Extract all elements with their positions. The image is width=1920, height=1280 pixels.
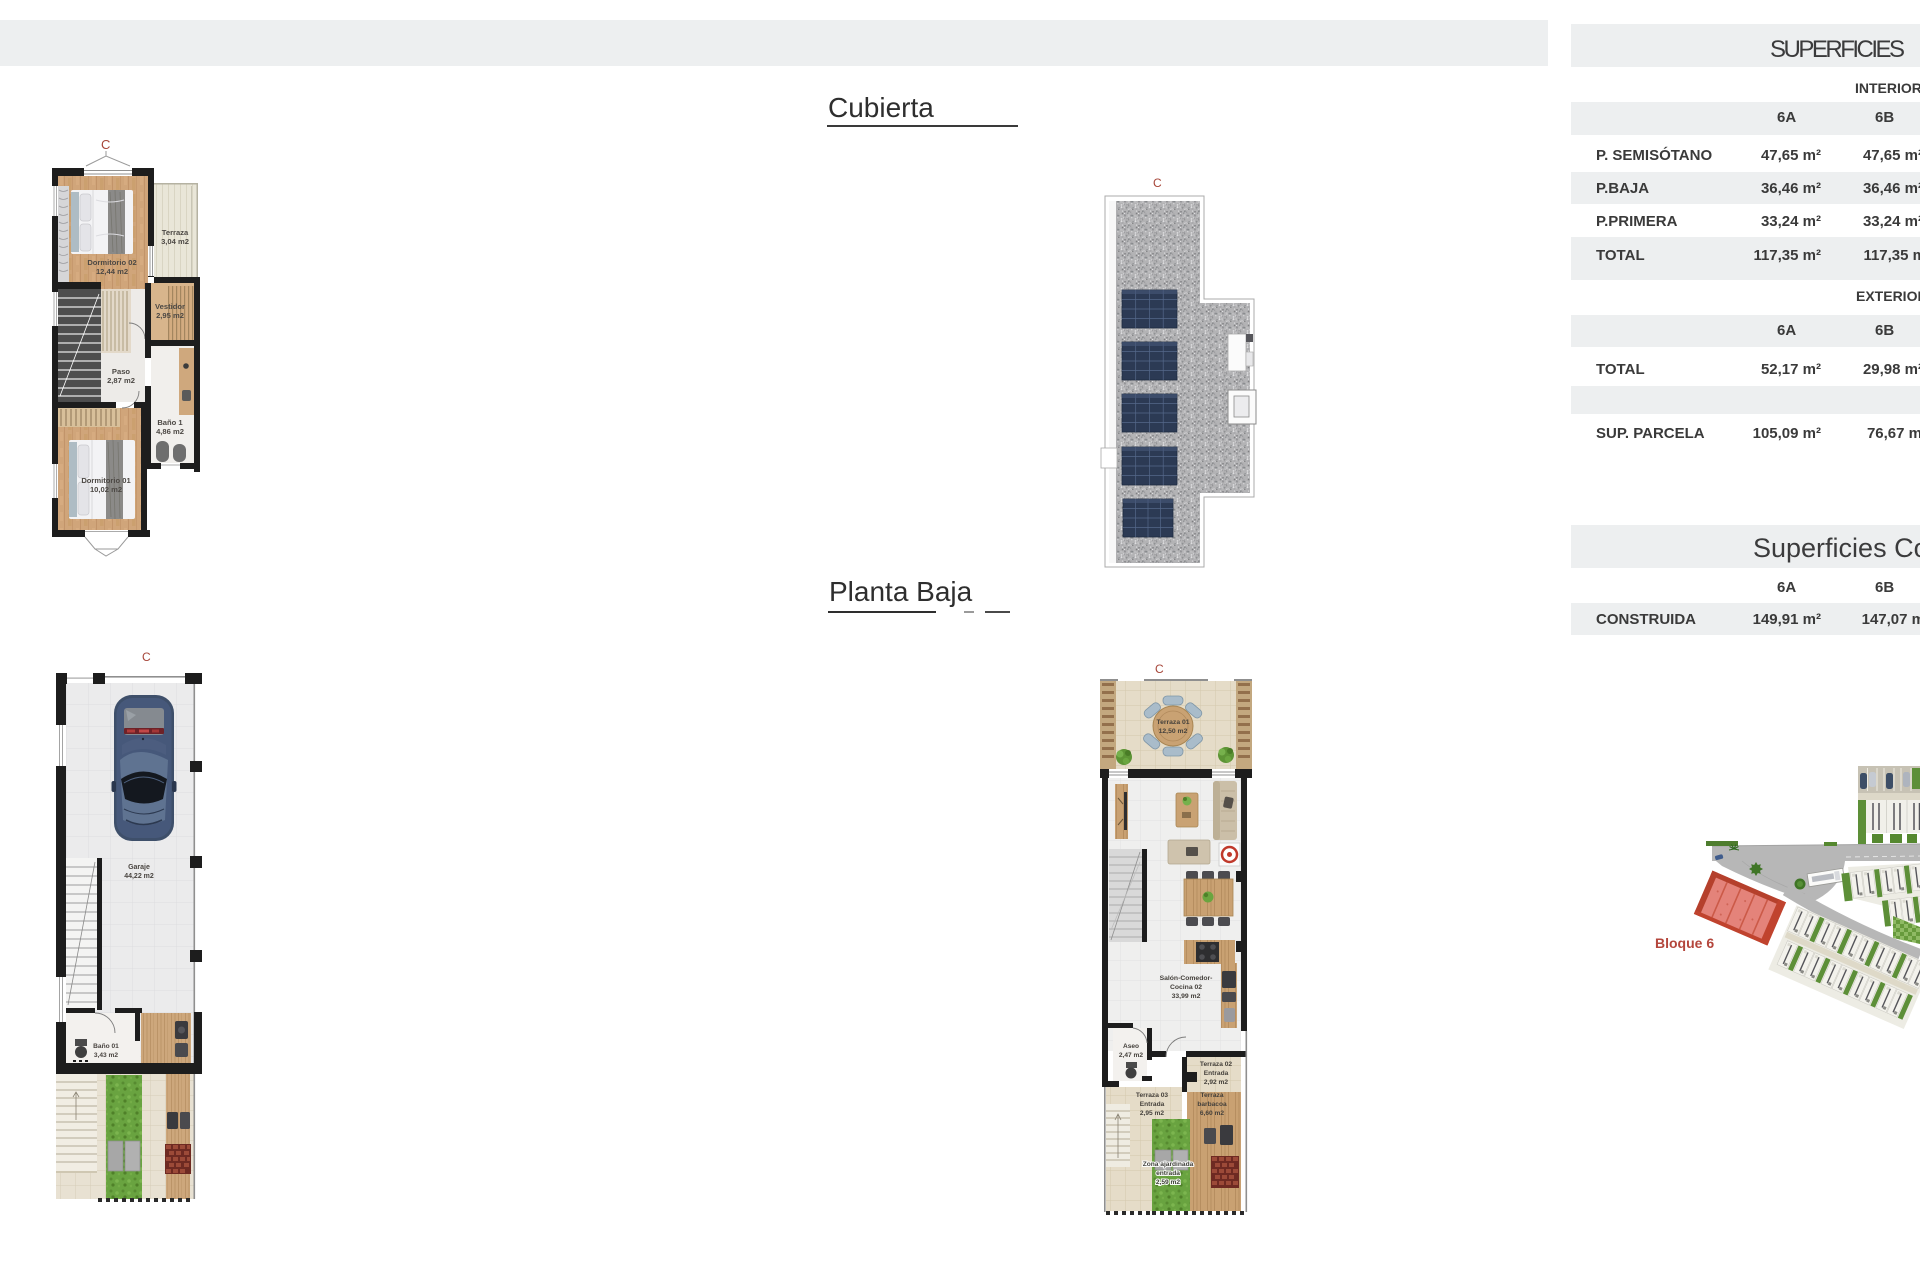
svg-text:44,22 m2: 44,22 m2	[124, 873, 154, 880]
svg-text:12,50 m2: 12,50 m2	[1159, 728, 1188, 735]
svg-text:Vestidor: Vestidor	[155, 302, 185, 311]
svg-text:Entrada: Entrada	[1140, 1101, 1165, 1108]
svg-text:6,60 m2: 6,60 m2	[1200, 1110, 1225, 1117]
svg-text:Terraza: Terraza	[1201, 1092, 1224, 1099]
svg-text:Dormitorio 01: Dormitorio 01	[81, 476, 131, 485]
svg-text:Terraza 01: Terraza 01	[1156, 719, 1189, 726]
svg-text:2,95 m2: 2,95 m2	[156, 311, 184, 320]
svg-text:2,87 m2: 2,87 m2	[107, 376, 135, 385]
svg-text:33,99 m2: 33,99 m2	[1172, 993, 1201, 1000]
svg-text:Garaje: Garaje	[128, 864, 150, 871]
svg-text:12,44 m2: 12,44 m2	[96, 267, 128, 276]
svg-text:2,47 m2: 2,47 m2	[1119, 1052, 1144, 1059]
svg-text:C: C	[1153, 176, 1162, 190]
svg-text:C: C	[101, 137, 110, 152]
svg-text:entrada: entrada	[1156, 1170, 1180, 1177]
svg-text:Baño 1: Baño 1	[157, 418, 183, 427]
svg-text:Terraza: Terraza	[162, 228, 189, 237]
svg-text:C: C	[142, 650, 151, 664]
svg-text:Zona ajardinada: Zona ajardinada	[1143, 1161, 1194, 1168]
svg-text:4,86 m2: 4,86 m2	[156, 427, 184, 436]
svg-text:C: C	[1155, 662, 1164, 676]
svg-text:Cocina 02: Cocina 02	[1170, 984, 1202, 991]
svg-text:barbacoa: barbacoa	[1197, 1101, 1227, 1108]
svg-text:Baño 01: Baño 01	[93, 1043, 119, 1050]
svg-text:Aseo: Aseo	[1123, 1043, 1139, 1050]
svg-text:2,95 m2: 2,95 m2	[1140, 1110, 1165, 1117]
svg-text:Entrada: Entrada	[1204, 1070, 1229, 1077]
svg-text:Terraza 02: Terraza 02	[1200, 1061, 1232, 1068]
svg-text:2,92 m2: 2,92 m2	[1204, 1079, 1229, 1086]
svg-text:Paso: Paso	[112, 367, 131, 376]
svg-text:Terraza 03: Terraza 03	[1136, 1092, 1168, 1099]
svg-text:Bloque 6: Bloque 6	[1655, 935, 1714, 951]
svg-text:2,59 m2: 2,59 m2	[1156, 1179, 1181, 1186]
svg-text:Dormitorio 02: Dormitorio 02	[87, 258, 136, 267]
svg-text:Salón-Comedor-: Salón-Comedor-	[1160, 975, 1213, 982]
svg-text:3,04 m2: 3,04 m2	[161, 237, 189, 246]
svg-text:10,02 m2: 10,02 m2	[90, 485, 122, 494]
svg-text:3,43 m2: 3,43 m2	[94, 1052, 119, 1059]
